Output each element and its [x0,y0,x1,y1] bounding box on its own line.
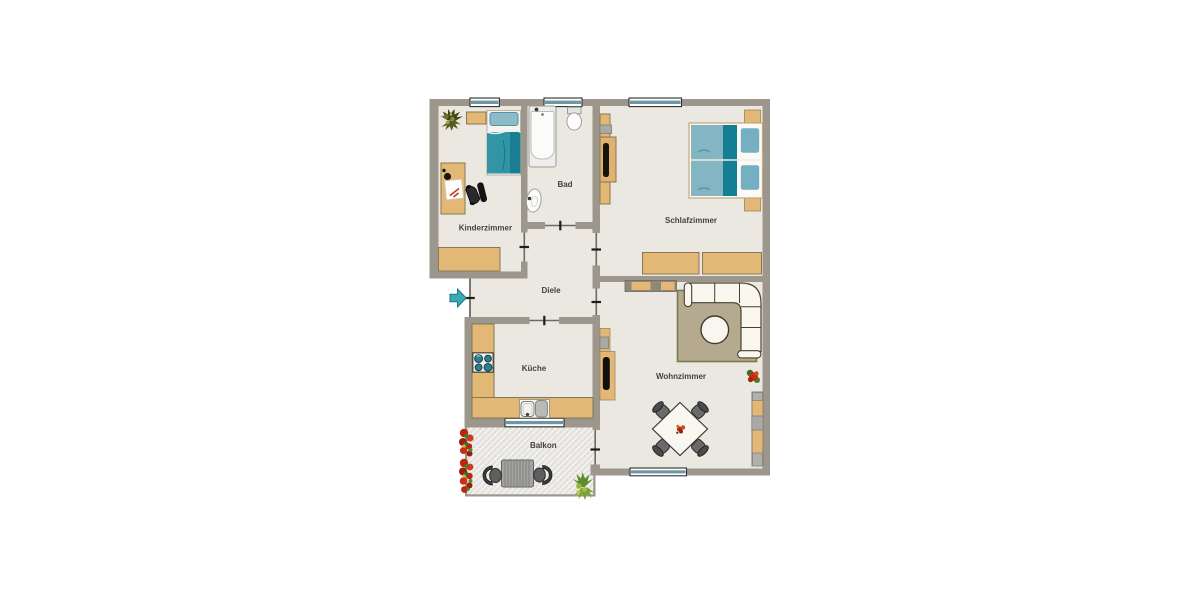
svg-text:Balkon: Balkon [530,441,557,450]
svg-text:Bad: Bad [557,180,572,189]
svg-text:Küche: Küche [522,364,547,373]
svg-text:Diele: Diele [541,286,561,295]
svg-text:Wohnzimmer: Wohnzimmer [656,372,706,381]
svg-text:Schlafzimmer: Schlafzimmer [665,216,717,225]
svg-text:Kinderzimmer: Kinderzimmer [459,224,512,233]
